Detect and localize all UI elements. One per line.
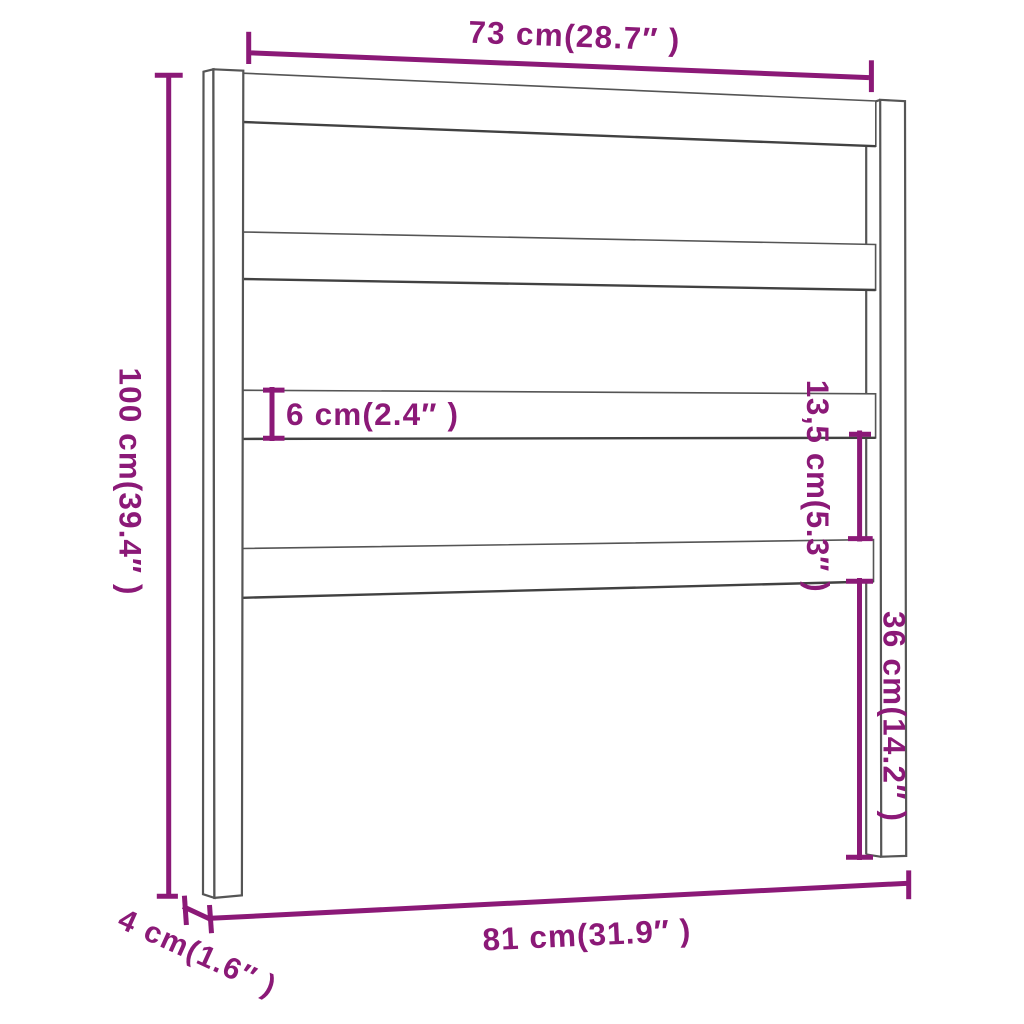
svg-text:6 cm(2.4″ ): 6 cm(2.4″ ) [286,396,458,432]
svg-text:36 cm(14.2″ ): 36 cm(14.2″ ) [877,611,913,821]
svg-text:100 cm(39.4″ ): 100 cm(39.4″ ) [113,368,149,595]
svg-text:13,5 cm(5.3″ ): 13,5 cm(5.3″ ) [800,380,836,592]
